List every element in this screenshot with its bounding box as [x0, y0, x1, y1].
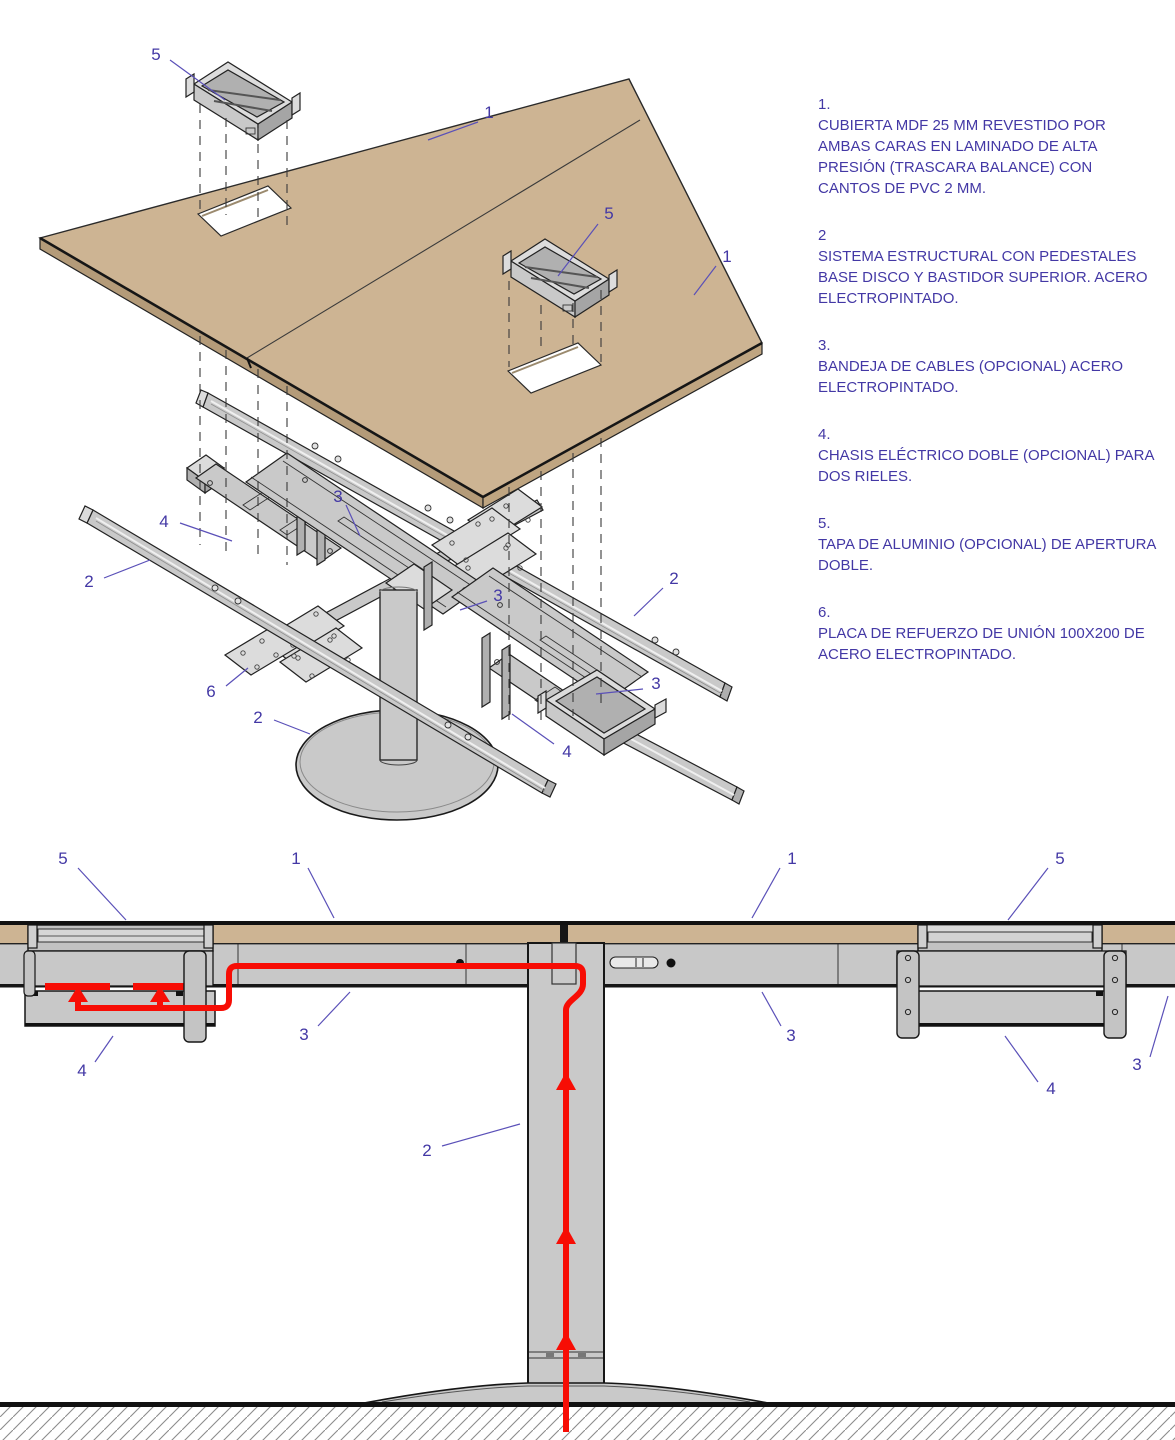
cover-left-section	[28, 925, 213, 951]
legend-item-number: 6.	[818, 602, 1158, 623]
callout-number: 3	[333, 487, 342, 506]
callout-number: 5	[1055, 849, 1064, 868]
exploded-view: 5 1 5 1 3 4 2 3 2 6 2 3 4	[40, 45, 762, 820]
legend-item-number: 3.	[818, 335, 1158, 356]
tabletop-seam	[560, 925, 568, 943]
callout-number: 3	[299, 1025, 308, 1044]
callout-number: 3	[786, 1026, 795, 1045]
legend-item-text: TAPA DE ALUMINIO (OPCIONAL) DE APERTURA …	[818, 534, 1158, 576]
legend-panel: 1. CUBIERTA MDF 25 MM REVESTIDO POR AMBA…	[818, 94, 1158, 691]
elevation-view: 5 1 1 5 3 4 3 2 4 3	[0, 849, 1175, 1440]
cover-box-left	[186, 62, 300, 140]
legend-item-5: 5. TAPA DE ALUMINIO (OPCIONAL) DE APERTU…	[818, 513, 1158, 576]
legend-item-number: 4.	[818, 424, 1158, 445]
cable-route	[68, 966, 583, 1432]
legend-item-text: PLACA DE REFUERZO DE UNIÓN 100X200 DE AC…	[818, 623, 1158, 665]
chassis-left-section	[24, 951, 215, 1042]
legend-item-number: 2	[818, 225, 1158, 246]
callout-number: 1	[291, 849, 300, 868]
legend-item-4: 4. CHASIS ELÉCTRICO DOBLE (OPCIONAL) PAR…	[818, 424, 1158, 487]
callout-number: 2	[253, 708, 262, 727]
legend-item-text: CHASIS ELÉCTRICO DOBLE (OPCIONAL) PARA D…	[818, 445, 1158, 487]
callout-number: 1	[787, 849, 796, 868]
callout-number: 2	[84, 572, 93, 591]
callout-number: 4	[1046, 1079, 1055, 1098]
callout-number: 3	[493, 586, 502, 605]
legend-item-number: 5.	[818, 513, 1158, 534]
legend-item-number: 1.	[818, 94, 1158, 115]
callout-number: 1	[484, 103, 493, 122]
legend-item-1: 1. CUBIERTA MDF 25 MM REVESTIDO POR AMBA…	[818, 94, 1158, 199]
tabletop	[40, 79, 762, 508]
chassis-right-section	[897, 951, 1126, 1038]
legend-item-3: 3. BANDEJA DE CABLES (OPCIONAL) ACERO EL…	[818, 335, 1158, 398]
callout-number: 6	[206, 682, 215, 701]
callout-number: 4	[562, 742, 571, 761]
legend-item-2: 2 SISTEMA ESTRUCTURAL CON PEDESTALES BAS…	[818, 225, 1158, 309]
callout-number: 5	[58, 849, 67, 868]
callout-number: 3	[651, 674, 660, 693]
page: 5 1 5 1 3 4 2 3 2 6 2 3 4	[0, 0, 1175, 1440]
callout-number: 4	[159, 512, 168, 531]
callout-number: 1	[722, 247, 731, 266]
legend-item-6: 6. PLACA DE REFUERZO DE UNIÓN 100X200 DE…	[818, 602, 1158, 665]
legend-item-text: CUBIERTA MDF 25 MM REVESTIDO POR AMBAS C…	[818, 115, 1158, 199]
callout-number: 5	[604, 204, 613, 223]
tabletop-top-line	[0, 921, 1175, 925]
legend-item-text: BANDEJA DE CABLES (OPCIONAL) ACERO ELECT…	[818, 356, 1158, 398]
cover-right-section	[918, 925, 1102, 951]
callout-number: 3	[1132, 1055, 1141, 1074]
floor	[0, 1402, 1175, 1440]
legend-item-text: SISTEMA ESTRUCTURAL CON PEDESTALES BASE …	[818, 246, 1158, 309]
callout-number: 2	[422, 1141, 431, 1160]
callout-number: 4	[77, 1061, 86, 1080]
callout-number: 2	[669, 569, 678, 588]
callout-number: 5	[151, 45, 160, 64]
